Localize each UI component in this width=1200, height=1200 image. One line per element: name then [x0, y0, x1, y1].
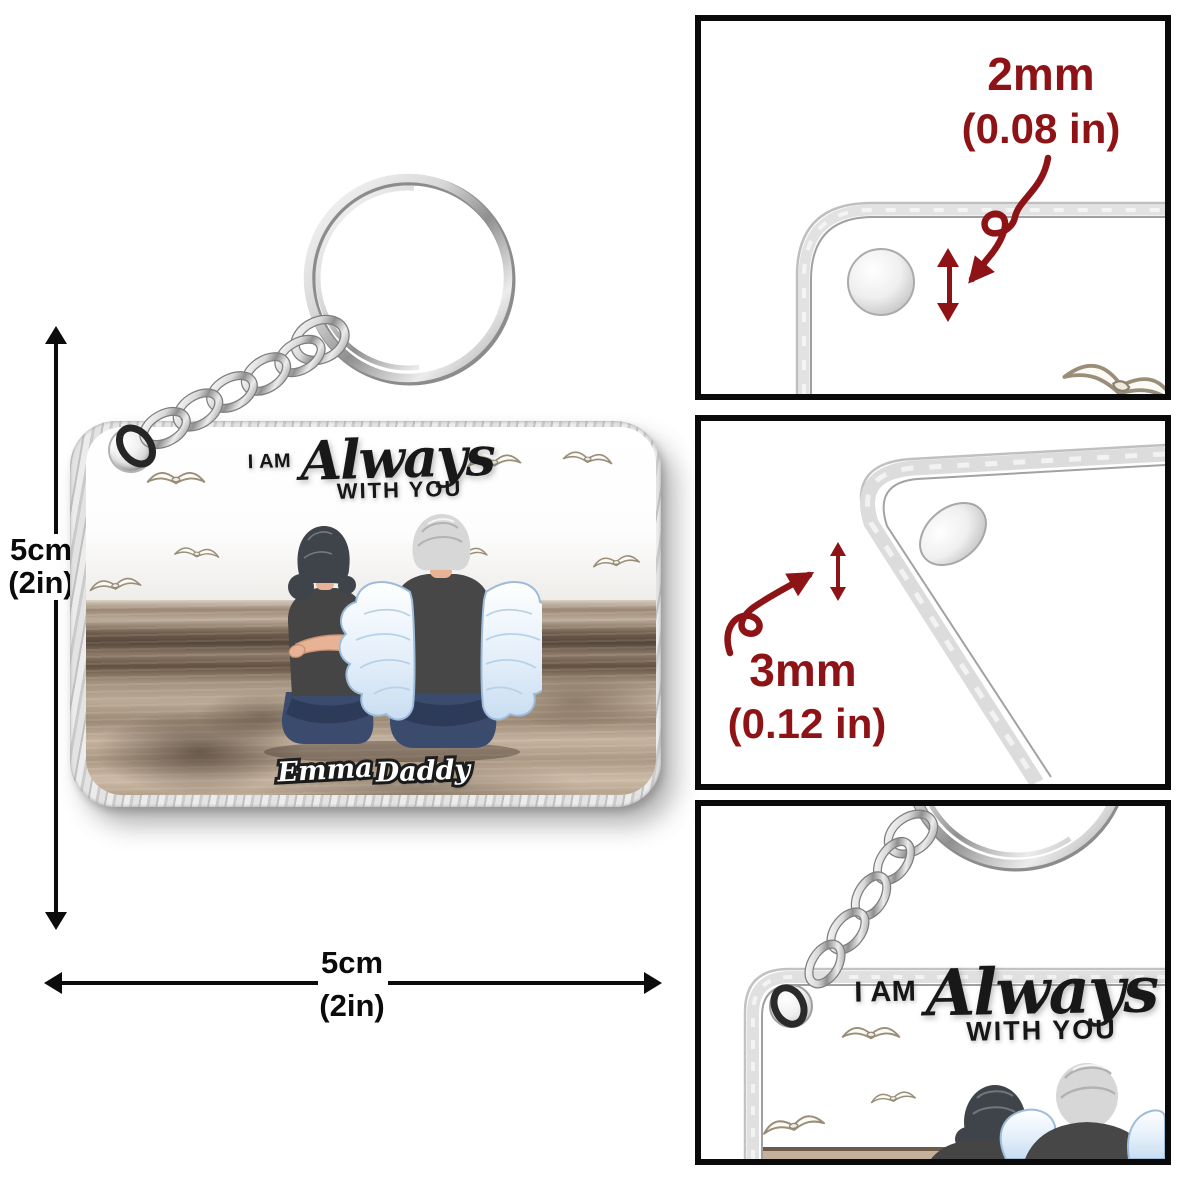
hole-arrowhead-down [937, 303, 959, 322]
curved-pointer-arrow [728, 575, 809, 653]
keychain-face: I AM Always WITH YOU [86, 427, 656, 795]
width-alt: (2in) [273, 990, 431, 1023]
keyring-icon [308, 178, 510, 380]
hole-callout-value: 2mm [941, 51, 1141, 97]
height-arrow-line2 [54, 600, 58, 912]
height-arrowhead-bottom [45, 912, 67, 930]
thickness-callout-alt: (0.12 in) [707, 703, 907, 745]
width-arrow-line2 [388, 981, 644, 985]
seagull-icon [1064, 359, 1165, 394]
detail-panel-closeup: I AM Always WITH YOU [695, 800, 1171, 1165]
name-tag: Daddy [372, 754, 473, 788]
width-arrowhead-right [644, 972, 662, 994]
width-value: 5cm [273, 947, 431, 980]
width-arrow-line [60, 981, 318, 985]
thickness-callout-value: 3mm [708, 647, 898, 693]
title-script: Always [925, 961, 1158, 1023]
detail-panel-thickness: 3mm (0.12 in) [695, 415, 1171, 790]
thickness-arrowhead-down [830, 587, 846, 601]
product-mockup: 5cm (2in) 5cm (2in) 2mm (0.08 in) [0, 0, 1200, 1200]
closeup-title: I AM Always WITH YOU [850, 961, 1161, 1049]
title-prefix: I AM [247, 450, 291, 474]
keychain-plate: I AM Always WITH YOU [70, 421, 661, 807]
seagull-icon [871, 1091, 916, 1104]
hole-arrow-line [947, 265, 952, 305]
keychain-hole [848, 249, 914, 315]
thickness-arrowhead-up [830, 542, 846, 556]
angel-wing-icon [481, 582, 542, 720]
keyring-icon [907, 806, 1124, 866]
hole-callout-alt: (0.08 in) [941, 108, 1141, 150]
height-arrow-line [54, 342, 58, 534]
angel-wing-icon [1128, 1110, 1165, 1159]
seagull-icon [762, 1114, 824, 1135]
seagull-icon [146, 463, 206, 490]
keychain-hole [110, 429, 152, 471]
couple-illustration [252, 502, 542, 762]
curved-pointer-arrow [972, 158, 1048, 279]
keychain-title: I AM Always WITH YOU [220, 431, 522, 507]
title-prefix: I AM [854, 975, 917, 1009]
keychain-hole-tilted [908, 490, 998, 577]
seagull-icon [173, 539, 220, 563]
title-suffix: WITH YOU [851, 1013, 1161, 1049]
thickness-arrow-line [836, 555, 840, 589]
name-tag: Emma [274, 752, 375, 788]
detail-panel-hole: 2mm (0.08 in) [695, 15, 1171, 400]
